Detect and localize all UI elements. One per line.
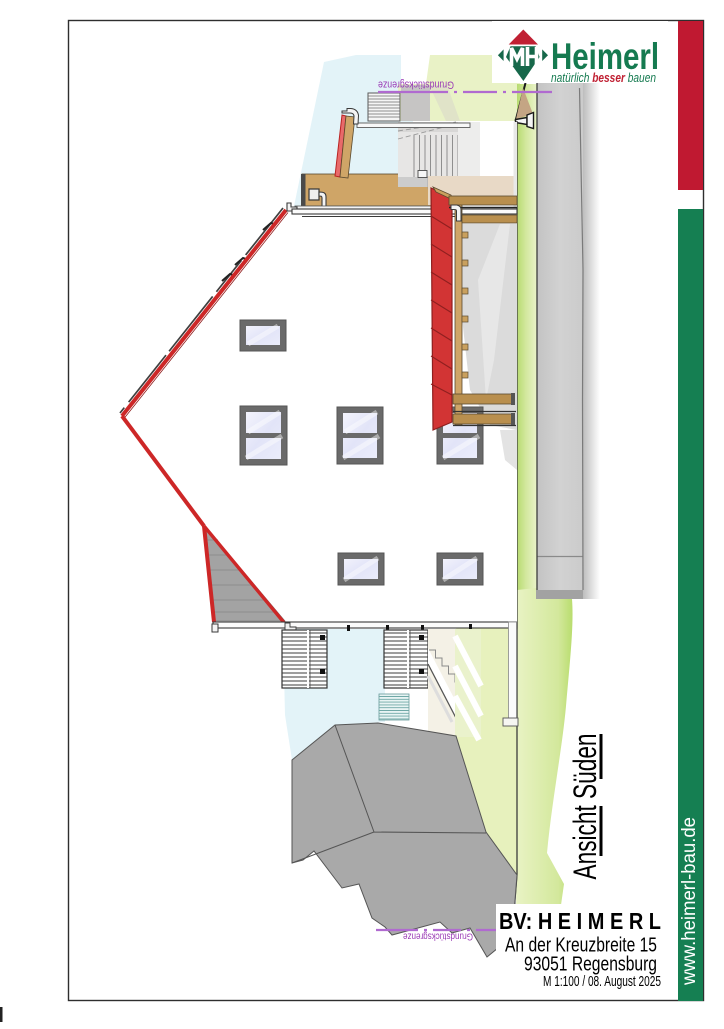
svg-text:M 1:100 / 08. August 2025: M 1:100 / 08. August 2025 [543,974,661,990]
svg-text:Ansicht Süden: Ansicht Süden [567,734,603,880]
svg-text:BV: H E I M E R L: BV: H E I M E R L [499,908,661,934]
svg-text:natürlich besser bauen: natürlich besser bauen [551,70,656,85]
svg-text:www.heimerl-bau.de: www.heimerl-bau.de [679,817,700,986]
svg-text:93051 Regensburg: 93051 Regensburg [524,953,657,976]
svg-text:Grundstücksgrenze: Grundstücksgrenze [403,931,473,943]
svg-text:Grundstücksgrenze: Grundstücksgrenze [378,79,454,91]
